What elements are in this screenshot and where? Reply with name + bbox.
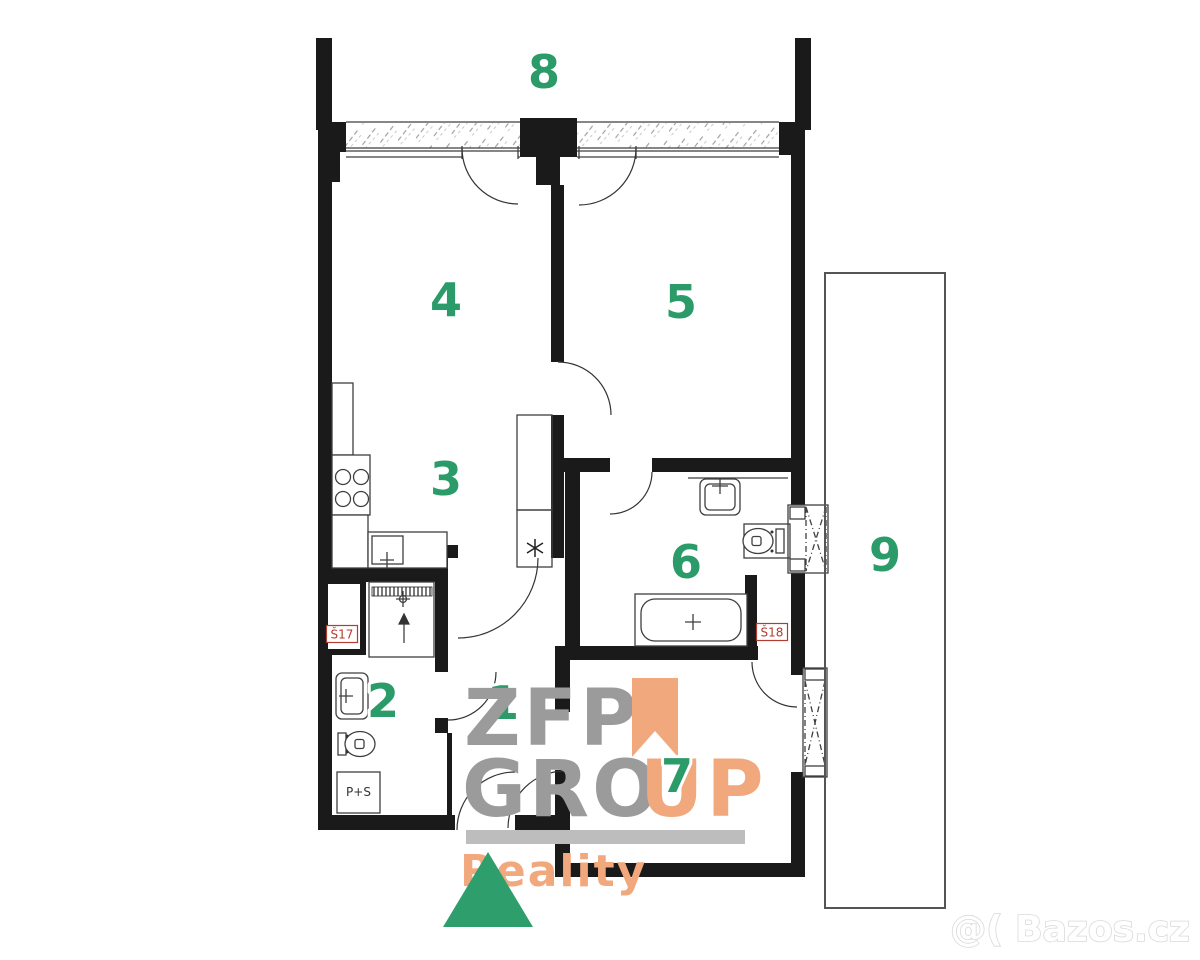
counter <box>368 532 447 568</box>
shaft-s17-label: Š17 <box>331 627 354 642</box>
wall-segment <box>791 122 805 472</box>
shower-screen <box>372 587 432 596</box>
logo-text-gro: GRO <box>462 745 661 835</box>
slope-arrow-icon <box>399 614 409 643</box>
logo-text-up: UP <box>640 745 767 835</box>
tall-cabinet <box>332 383 353 455</box>
toilet-dot <box>346 751 349 754</box>
washer-dryer-label: P+S <box>346 785 371 799</box>
window-cap <box>805 669 825 680</box>
room-label-9: 9 <box>869 528 901 582</box>
wall-partition-4-5 <box>551 185 564 362</box>
room-label-3: 3 <box>430 452 462 506</box>
wall-segment <box>316 38 332 130</box>
wall-segment <box>318 122 332 830</box>
room-label-7: 7 <box>661 749 693 803</box>
pillar-stem <box>536 157 560 185</box>
site-watermark: @( Bazos.cz <box>950 909 1190 950</box>
niche-cabinet <box>517 415 552 510</box>
room-label-2: 2 <box>367 674 399 728</box>
wall-segment <box>791 571 805 648</box>
wall-wc-right <box>435 582 448 672</box>
wall-segment <box>791 472 805 508</box>
balcony-door-arc-room4 <box>462 148 518 204</box>
door-arc-bathroom <box>610 472 652 514</box>
terrace-area-outline <box>825 273 945 908</box>
room-label-4: 4 <box>430 273 462 327</box>
toilet-bowl <box>345 732 375 757</box>
toilet-dot <box>346 735 349 738</box>
window-cap <box>805 766 825 776</box>
wall-segment <box>795 38 811 130</box>
wall-bath-left <box>565 458 580 658</box>
pillar <box>520 118 577 157</box>
bathroom-fixtures <box>635 478 790 646</box>
bathtub <box>635 594 747 646</box>
asterisk-marker-icon <box>527 539 543 557</box>
wall-bath-bottom <box>565 646 758 660</box>
appliance-niche <box>517 510 552 567</box>
room-label-5: 5 <box>665 275 697 329</box>
window-cap <box>790 559 805 571</box>
window-glazing-hatch <box>577 123 779 148</box>
wall-segment <box>332 122 346 152</box>
door-arc-room7-top <box>752 662 797 707</box>
toilet-tank <box>776 529 784 553</box>
wall-thin <box>447 733 452 815</box>
door-jamb <box>753 646 758 660</box>
wall-segment <box>791 772 805 877</box>
wall-bath-top-right <box>652 458 791 472</box>
door-jamb <box>435 718 448 733</box>
logo-bar <box>466 830 745 844</box>
wall-bath-top-left <box>551 458 610 472</box>
shaft-s18-label: Š18 <box>761 625 784 640</box>
toilet-bowl <box>743 529 773 554</box>
door-arc-kitchen <box>458 558 538 638</box>
counter-corner <box>332 515 368 568</box>
window-glazing-hatch <box>346 123 520 148</box>
wall-segment <box>318 815 455 830</box>
door-arc-room5 <box>558 362 611 415</box>
room-label-6: 6 <box>670 535 702 589</box>
toilet-dot <box>771 550 774 553</box>
window-cap <box>790 507 805 519</box>
agency-watermark: ZFP GRO UP Reality <box>443 674 767 927</box>
room-label-8: 8 <box>528 45 560 99</box>
toilet-dot <box>771 531 774 534</box>
floor-plan: Š17 Š18 <box>0 0 1200 960</box>
wall-segment <box>332 152 340 182</box>
wall-segment <box>551 415 564 558</box>
